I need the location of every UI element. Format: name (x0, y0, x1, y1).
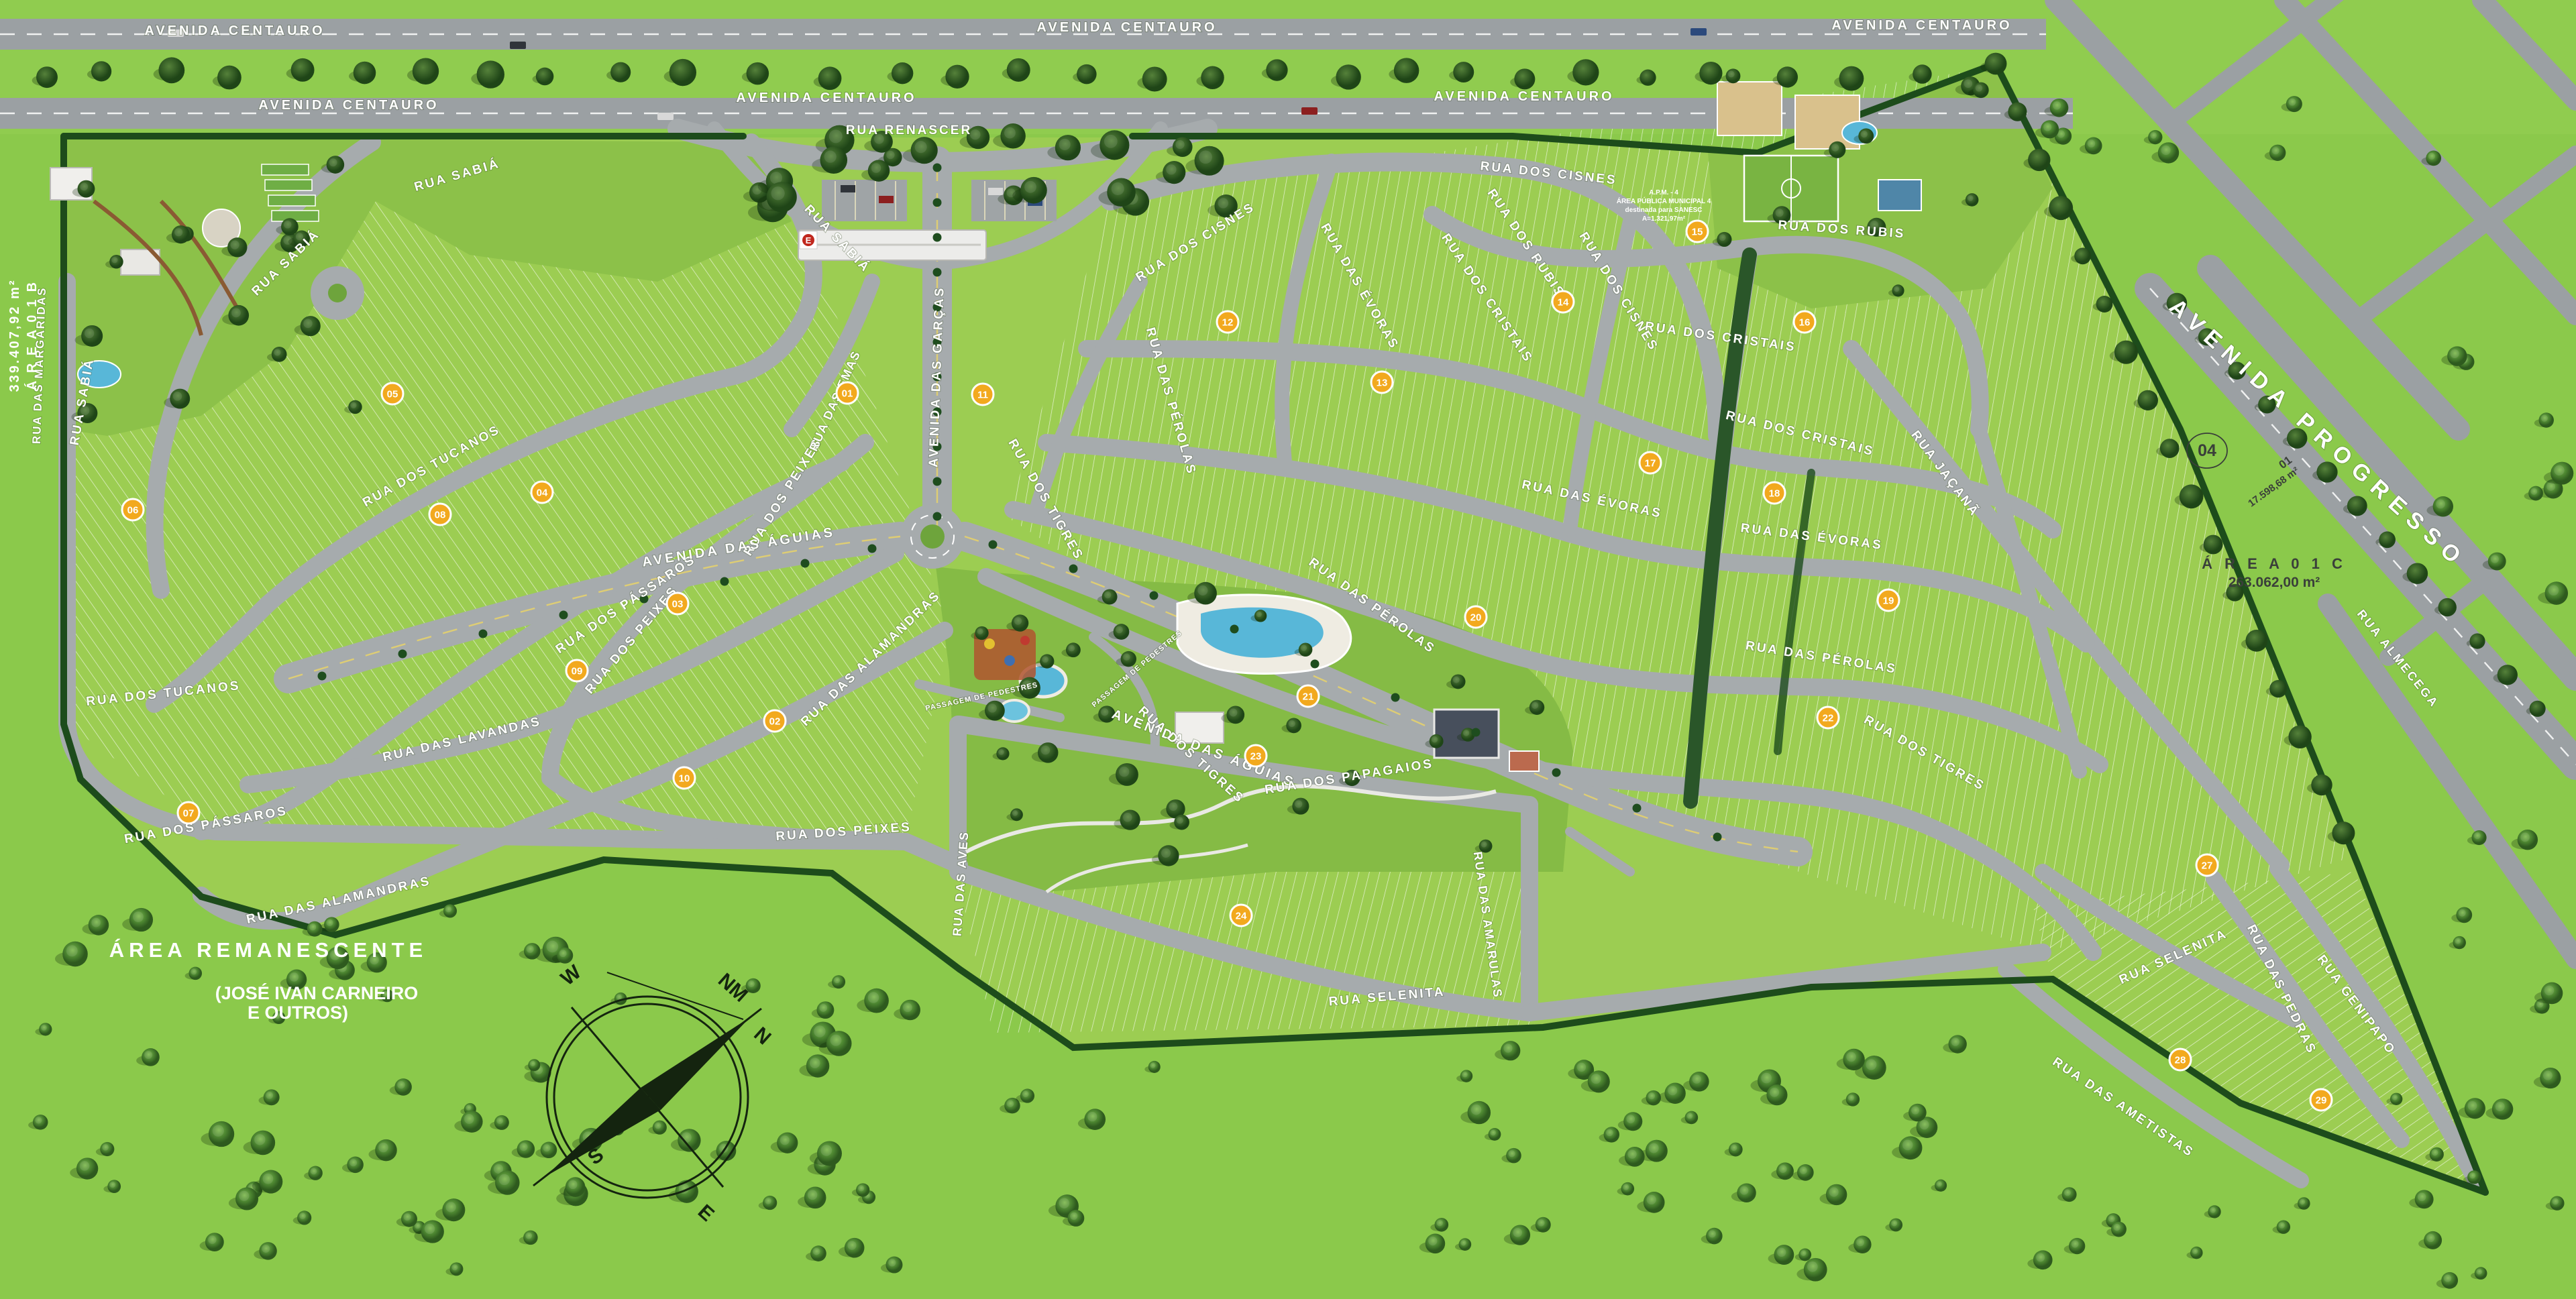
svg-text:17: 17 (1645, 458, 1656, 469)
svg-text:16: 16 (1799, 317, 1811, 329)
svg-text:21: 21 (1303, 691, 1314, 703)
car (657, 113, 674, 120)
svg-text:03: 03 (672, 599, 684, 610)
palm (933, 199, 942, 207)
car (1690, 28, 1707, 36)
block-marker-14: 14 (1552, 291, 1574, 313)
svg-text:22: 22 (1823, 713, 1834, 724)
block-marker-04: 04 (531, 482, 553, 503)
svg-text:07: 07 (183, 808, 195, 820)
palm (933, 268, 942, 277)
block-marker-24: 24 (1230, 905, 1252, 926)
street-label-rua-renascer: RUA RENASCER (846, 123, 972, 137)
map-canvas: E (0, 0, 2576, 1299)
svg-text:23: 23 (1250, 751, 1262, 763)
svg-text:27: 27 (2202, 860, 2213, 872)
gate-logo-letter: E (806, 235, 812, 245)
svg-text:09: 09 (572, 666, 583, 677)
palm (1633, 804, 1642, 813)
block-marker-06: 06 (122, 499, 144, 520)
car (841, 185, 855, 192)
palm (868, 545, 877, 553)
svg-text:28: 28 (2175, 1055, 2186, 1066)
svg-text:06: 06 (127, 505, 139, 516)
svg-text:04: 04 (2198, 441, 2216, 460)
palm (1150, 591, 1159, 600)
palm (1069, 565, 1078, 573)
palm (398, 650, 407, 659)
svg-text:11: 11 (977, 390, 988, 401)
palm (933, 233, 942, 242)
palm (933, 477, 942, 486)
roundabout-island (920, 524, 945, 549)
palm (720, 577, 729, 586)
street-label-avenida-centauro: AVENIDA CENTAURO (736, 91, 916, 105)
apm4-line: A.P.M. - 4 (1649, 189, 1678, 196)
area-remanescente-title: ÁREA REMANESCENTE (109, 938, 427, 962)
palm (479, 630, 488, 638)
palm (1311, 660, 1320, 669)
palm (801, 559, 810, 568)
palm (318, 672, 327, 681)
svg-text:01: 01 (842, 388, 853, 400)
block-marker-12: 12 (1217, 311, 1238, 333)
palm (933, 164, 942, 172)
street-label-avenida-centauro: AVENIDA CENTAURO (144, 23, 325, 38)
block-marker-27: 27 (2196, 854, 2218, 876)
svg-text:08: 08 (435, 510, 446, 521)
svg-text:10: 10 (679, 773, 690, 785)
block-marker-01: 01 (837, 382, 858, 404)
svg-text:19: 19 (1883, 596, 1894, 607)
svg-text:24: 24 (1236, 911, 1247, 922)
street-label-avenida-centauro: AVENIDA CENTAURO (258, 98, 439, 113)
svg-text:Á R E A 0 1 B: Á R E A 0 1 B (24, 280, 40, 390)
block-marker-02: 02 (764, 710, 786, 732)
street-label-avenida-centauro: AVENIDA CENTAURO (1831, 18, 2012, 33)
block-marker-10: 10 (674, 767, 695, 789)
svg-text:15: 15 (1692, 227, 1703, 238)
block-marker-19: 19 (1878, 589, 1899, 611)
block-marker-29: 29 (2310, 1089, 2332, 1111)
area-remanescente-sub2: E OUTROS) (248, 1003, 348, 1023)
street-label-avenida-centauro: AVENIDA CENTAURO (1434, 89, 1614, 104)
block-marker-16: 16 (1794, 311, 1815, 333)
svg-text:18: 18 (1769, 488, 1780, 500)
block-marker-13: 13 (1371, 372, 1393, 393)
car (879, 196, 894, 203)
cul-de-sac-island (328, 284, 347, 302)
block-marker-28: 28 (2169, 1049, 2191, 1070)
block-marker-11: 11 (972, 384, 994, 405)
block-marker-15: 15 (1686, 221, 1708, 242)
area-remanescente-sub1: (JOSÉ IVAN CARNEIRO (215, 982, 419, 1003)
block-marker-23: 23 (1245, 745, 1267, 767)
area-01c-size: 263.062,00 m² (2229, 575, 2320, 590)
palm (559, 611, 568, 620)
svg-text:13: 13 (1377, 378, 1388, 389)
masterplan-map: E (0, 0, 2576, 1299)
car (1301, 107, 1318, 115)
area-01c-label: Á R E A 0 1 C (2202, 555, 2347, 572)
street-label-avenida-centauro: AVENIDA CENTAURO (1036, 20, 1217, 35)
palm (1230, 625, 1239, 634)
palm (1391, 693, 1400, 702)
palm (989, 541, 998, 549)
block-marker-09: 09 (566, 660, 588, 681)
block-marker-05: 05 (382, 383, 403, 404)
apm4-line: ÁREA PÚBLICA MUNICIPAL 4 (1617, 196, 1711, 205)
palm (1472, 728, 1481, 737)
apm4-line: A=1.321,97m² (1642, 215, 1686, 223)
svg-text:04: 04 (537, 488, 548, 499)
parking-left (822, 180, 907, 221)
svg-text:14: 14 (1558, 297, 1569, 308)
block-marker-17: 17 (1640, 452, 1661, 473)
block-marker-21: 21 (1297, 685, 1319, 707)
apm4-line: destinada para SANESC (1625, 207, 1702, 214)
car (988, 188, 1003, 195)
svg-text:12: 12 (1222, 317, 1234, 329)
palm (1552, 769, 1561, 777)
svg-text:05: 05 (387, 389, 398, 400)
svg-text:29: 29 (2316, 1095, 2327, 1107)
svg-text:20: 20 (1470, 612, 1482, 624)
palm (933, 512, 942, 521)
block-marker-22: 22 (1817, 707, 1839, 728)
block-marker-08: 08 (429, 504, 451, 525)
block-marker-20: 20 (1465, 606, 1487, 628)
palm (1713, 833, 1722, 842)
block-marker-03: 03 (667, 593, 688, 614)
svg-text:02: 02 (769, 716, 781, 728)
block-marker-07: 07 (178, 802, 199, 824)
block-marker-18: 18 (1764, 482, 1785, 504)
car (510, 42, 526, 49)
svg-text:339.407,92 m²: 339.407,92 m² (7, 278, 22, 392)
